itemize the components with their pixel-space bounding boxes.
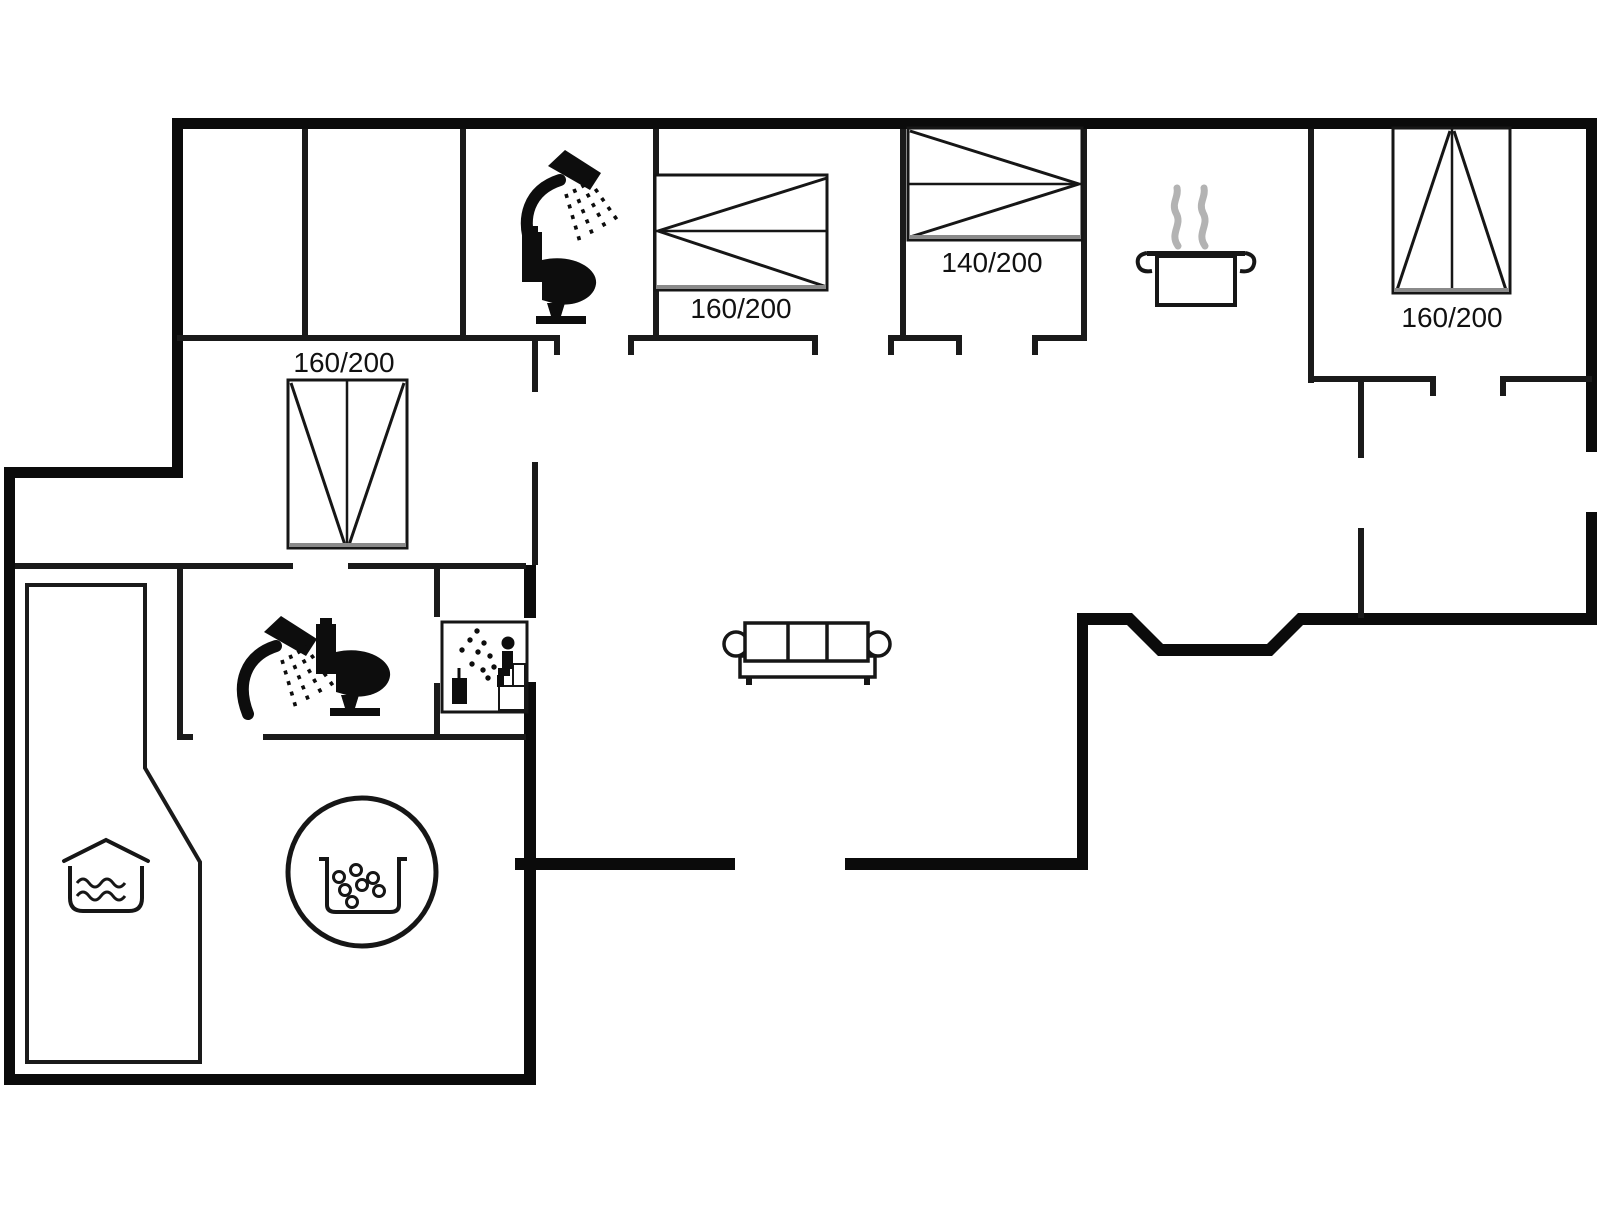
floorplan-page: 160/200 140/200 160/200 160/200	[0, 0, 1606, 1205]
wall-notch-left	[515, 858, 735, 870]
pool-enclosure-outline	[27, 585, 200, 1062]
wall-left-upper	[172, 118, 183, 478]
wall-left-outer	[4, 467, 15, 1085]
wall-step	[4, 467, 183, 478]
door-jamb	[888, 341, 894, 355]
bed-size-label-top-140: 140/200	[941, 247, 1042, 278]
wall-mid-vertical-lower	[524, 682, 536, 1085]
wall-bath-bottom	[263, 734, 526, 740]
wall-terrace-stub-upper	[1358, 382, 1364, 458]
wall-bedroom-mid-right-1	[532, 341, 538, 392]
wall-divider-4	[900, 129, 906, 341]
wall-bath-foot	[177, 734, 193, 740]
door-jamb	[628, 341, 634, 355]
wall-bedroom-right-bottom-1	[1308, 376, 1436, 382]
hot-tub-icon	[288, 798, 436, 946]
wall-bedroom-right-bottom-2	[1500, 376, 1592, 382]
wall-divider-1	[302, 129, 308, 341]
wall-right-upper	[1586, 118, 1597, 452]
wall-bottom-bay	[1082, 613, 1597, 656]
bed-top-center	[655, 175, 827, 290]
wall-top	[172, 118, 1597, 129]
door-jamb	[1500, 382, 1506, 396]
door-jamb	[554, 341, 560, 355]
wall-notch-right	[845, 858, 1088, 870]
wall-poolroom-top-1	[15, 563, 293, 569]
bed-size-label-top-center: 160/200	[690, 293, 791, 324]
door-jamb	[956, 341, 962, 355]
pool-icon	[64, 840, 148, 911]
wall-sauna-left-1	[434, 565, 440, 617]
toilet-icon-lower-bath	[316, 618, 390, 716]
wall-bedroom-mid-right-2	[532, 462, 538, 565]
wall-notch-vertical	[1077, 613, 1088, 870]
wall-right-lower	[1586, 512, 1597, 625]
wall-band-bottom-3	[888, 335, 962, 341]
steam-wisp	[1201, 188, 1205, 246]
wall-bottom-left	[4, 1074, 536, 1085]
wall-bath-left	[177, 565, 183, 740]
wall-bedroom-right-left	[1308, 129, 1314, 383]
toilet-icon-top-bath	[522, 226, 596, 324]
steam-wisp	[1174, 188, 1178, 246]
bed-top-140	[908, 128, 1082, 240]
sauna-icon	[442, 622, 527, 712]
door-jamb	[812, 341, 818, 355]
bed-left-middle	[288, 380, 407, 548]
wall-mid-vertical-upper	[524, 565, 536, 618]
wall-divider-2	[460, 129, 466, 341]
bed-right	[1393, 128, 1510, 293]
bed-size-label-left-mid: 160/200	[293, 347, 394, 378]
sofa	[724, 623, 890, 685]
wall-sauna-left-2	[434, 683, 440, 740]
cooking-pot-icon	[1138, 188, 1255, 305]
door-jamb	[1032, 341, 1038, 355]
bed-size-label-right: 160/200	[1401, 302, 1502, 333]
wall-band-bottom-1	[177, 335, 560, 341]
wall-terrace-stub-lower	[1358, 528, 1364, 618]
wall-band-bottom-4	[1032, 335, 1085, 341]
door-jamb	[1430, 382, 1436, 396]
floorplan-svg: 160/200 140/200 160/200 160/200	[0, 0, 1606, 1205]
